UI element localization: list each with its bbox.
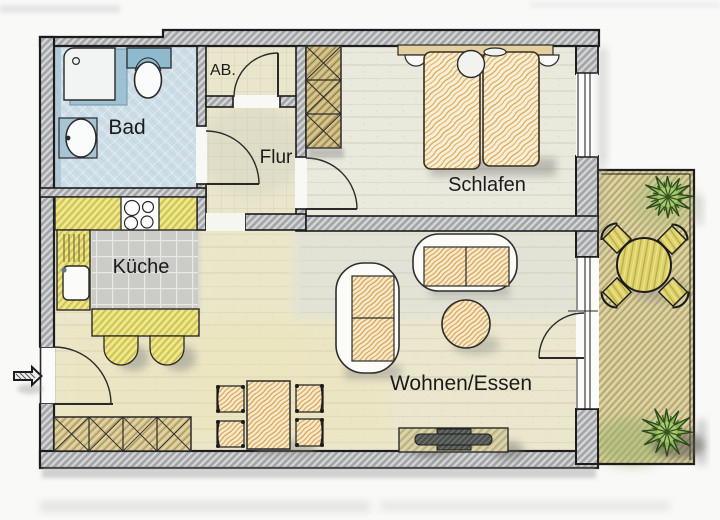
svg-text:Wohnen/Essen: Wohnen/Essen — [390, 372, 532, 395]
svg-text:Flur: Flur — [260, 147, 293, 168]
svg-text:Küche: Küche — [113, 256, 170, 278]
svg-text:Bad: Bad — [108, 116, 145, 139]
svg-text:Schlafen: Schlafen — [448, 174, 526, 196]
svg-text:AB.: AB. — [210, 62, 236, 79]
